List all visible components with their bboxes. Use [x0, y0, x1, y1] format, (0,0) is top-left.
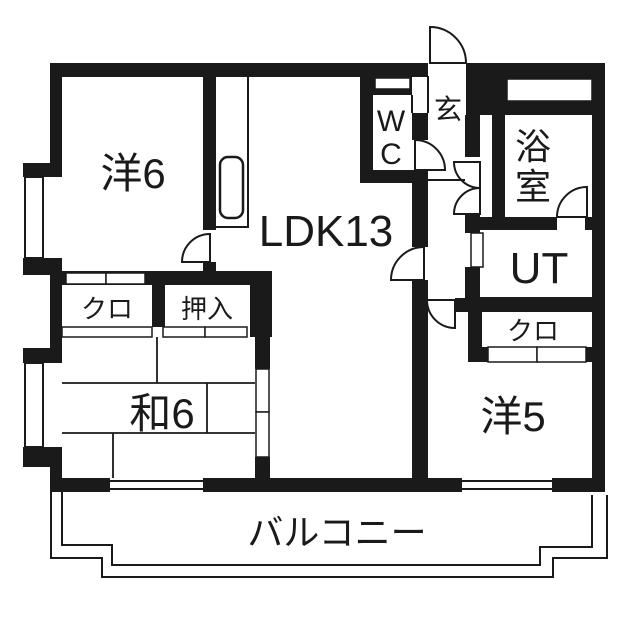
room-label-ldk: LDK13 [259, 207, 394, 256]
floorplan-svg: 洋6 LDK13 W C 玄 浴 室 UT クロ 押入 和6 クロ 洋5 バルコ… [0, 0, 640, 636]
wall-wc-left [360, 95, 373, 183]
door-ut [471, 233, 483, 267]
room-label-wc-line1: W [377, 105, 406, 138]
room-label-oshiire: 押入 [181, 294, 233, 324]
wall-top-right [466, 63, 605, 77]
room-label-ut: UT [510, 244, 569, 293]
room-label-closet-right: クロ [507, 316, 559, 346]
wall-ldk-hall-2 [412, 280, 428, 478]
room-label-genkan: 玄 [434, 94, 462, 125]
room-label-bath-line2: 室 [515, 166, 551, 207]
window-cap [23, 163, 62, 177]
door-closet-left-panel [66, 273, 106, 284]
wall-ut-closet [465, 297, 592, 312]
wall-hall-right-2 [465, 215, 480, 233]
sliding-door-panel [220, 157, 243, 218]
wall-wc-bottom [373, 170, 412, 183]
wall-bottom-2 [203, 478, 462, 492]
wall-hall-right-3 [465, 267, 480, 298]
wall-oshiire-ldk [250, 271, 272, 337]
wall-wa6-ldk-2 [255, 457, 270, 478]
window-yo6-left [25, 177, 43, 258]
room-label-wc-line2: C [380, 138, 402, 171]
wall-bottom-1 [50, 478, 110, 492]
wall-closet-right-door-end [586, 347, 592, 362]
wall-bath-bottom-2 [585, 217, 592, 230]
window-cap [23, 348, 62, 363]
wall-bath-left [492, 95, 505, 230]
window-bath [507, 79, 592, 101]
wall-ldk-hall-1 [412, 183, 428, 247]
door-closet-left-panel [106, 273, 145, 284]
floorplan-page: 洋6 LDK13 W C 玄 浴 室 UT クロ 押入 和6 クロ 洋5 バルコ… [0, 0, 640, 636]
window-wa6-left [25, 363, 43, 447]
wall-bath-bottom-1 [480, 217, 557, 230]
door-oshiire-panel [163, 327, 205, 337]
wall-wc-right [412, 113, 428, 140]
wall-hall-corner [412, 170, 428, 183]
door-closet-right-panel [488, 347, 537, 362]
room-label-bath-line1: 浴 [515, 126, 551, 167]
wall-left-1 [50, 63, 62, 163]
wall-bottom-3 [552, 478, 592, 492]
room-label-balcony: バルコニー [247, 512, 426, 553]
window-cap [23, 258, 62, 275]
fusuma-panel [256, 412, 269, 457]
wall-hall-right-1 [465, 115, 480, 157]
room-label-wa6: 和6 [129, 390, 194, 437]
wall-closet-divider [152, 285, 165, 327]
door-closet-right-panel [537, 347, 586, 362]
room-label-closet-left: クロ [81, 294, 133, 324]
wall-left-2 [50, 275, 62, 348]
wall-yo6-ldk [203, 77, 216, 230]
wall-right [592, 63, 605, 492]
door-oshiire-panel [205, 327, 247, 337]
fusuma-panel [256, 369, 269, 412]
window-wc [375, 78, 410, 89]
wall-closet-right-door-end [482, 347, 488, 362]
wall-wa6-ldk-1 [255, 337, 270, 369]
closet-left-threshold [62, 327, 152, 337]
room-label-yo6: 洋6 [100, 150, 165, 197]
window-cap [23, 447, 62, 467]
room-label-yo5: 洋5 [480, 393, 545, 440]
